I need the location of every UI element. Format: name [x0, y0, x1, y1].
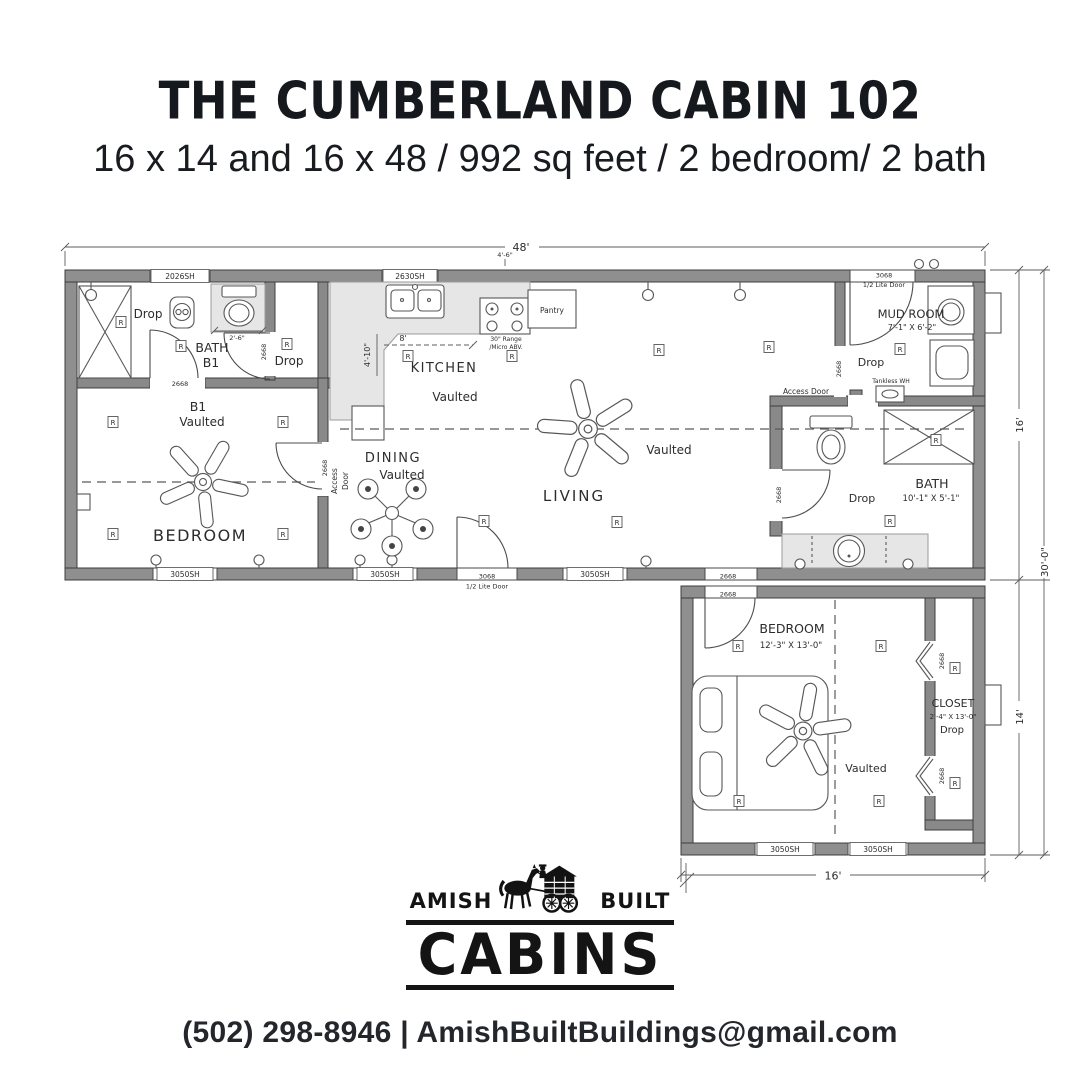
receptacle-r: R: [119, 319, 124, 327]
ceiling-fan-bedroom1: [154, 429, 258, 536]
horse-and-cabin-wagon-icon: [496, 860, 596, 918]
receptacle-r: R: [111, 419, 116, 427]
dim-top: 48' 4'-6": [61, 241, 989, 266]
drop-label-mudroom: Drop: [858, 356, 884, 369]
receptacle-r: R: [737, 798, 742, 806]
window-2630sh: 2630SH: [382, 270, 438, 283]
room-size-closet: 2'-4" X 13'-0": [930, 713, 977, 721]
logo-text-built: BUILT: [600, 889, 670, 918]
drop-label-closet-b1: Drop: [275, 354, 304, 368]
receptacle-r: R: [657, 347, 662, 355]
door-label-2668: 2668: [938, 653, 946, 670]
receptacle-r: R: [934, 437, 939, 445]
dim-right-total-label: 30'-0": [1040, 547, 1051, 577]
door-label-2668: 2668: [938, 768, 946, 785]
receptacle-r: R: [888, 518, 893, 526]
kitchen-run-label: 8': [399, 334, 406, 343]
room-label-bath2: BATH: [915, 476, 948, 491]
receptacle-r: R: [877, 798, 882, 806]
receptacle-r: R: [281, 531, 286, 539]
door-label-2668: 2668: [720, 573, 737, 581]
room-size-bedroom2: 12'-3" X 13'-0": [760, 641, 822, 651]
door-label-2668: 2668: [172, 380, 189, 388]
window-label: 3050SH: [863, 845, 893, 854]
receptacle-r: R: [285, 341, 290, 349]
toilet-b1: [222, 286, 256, 326]
floor-plan-drawing: 48' 4'-6" 16' 14' 30'-0" 16': [0, 225, 1080, 905]
kitchen-sink: [386, 285, 444, 319]
floor-plan: 48' 4'-6" 16' 14' 30'-0" 16': [0, 225, 1080, 905]
access-door-label: Access Door: [783, 387, 830, 396]
window-3050sh-bedroom2-left: 3050SH: [755, 843, 815, 856]
receptacle-r: R: [736, 643, 741, 651]
receptacle-r: R: [111, 531, 116, 539]
pantry-label: Pantry: [540, 306, 565, 315]
shower-bath2: [884, 410, 974, 464]
window-label: 3050SH: [770, 845, 800, 854]
kitchen-depth-label: 4'-10": [363, 343, 372, 367]
tankless-water-heater: [876, 386, 904, 402]
window-3050sh-bedroom2-right: 3050SH: [848, 843, 908, 856]
ceiling-fan-living: [521, 362, 659, 500]
room-label-b1-vaulted: Vaulted: [179, 415, 224, 429]
door-label-3068-type: 1/2 Lite Door: [863, 281, 906, 289]
room-label-living-vaulted: Vaulted: [646, 443, 691, 457]
room-label-bedroom1: BEDROOM: [153, 526, 247, 545]
page-title: THE CUMBERLAND CABIN 102: [22, 71, 1059, 132]
receptacle-r: R: [482, 518, 487, 526]
receptacle-r: R: [879, 643, 884, 651]
receptacle-r: R: [953, 665, 958, 673]
door-label-2668: 2668: [260, 344, 268, 361]
room-label-dining: DINING: [365, 451, 421, 466]
contact-line: (502) 298-8946 | AmishBuiltBuildings@gma…: [0, 1016, 1080, 1050]
left-wall-box: [77, 494, 90, 510]
dim-bottom: 16': [677, 858, 989, 893]
room-label-dining-vaulted: Vaulted: [379, 468, 424, 482]
kitchen-island-cabinet: [352, 406, 384, 440]
drop-label-closet2: Drop: [940, 725, 964, 736]
room-label-kitchen-vaulted: Vaulted: [432, 390, 477, 404]
ridge-lines: [82, 429, 965, 840]
washer: [930, 340, 974, 386]
drop-label-bath1: Drop: [134, 307, 163, 321]
room-label-bedroom2-vaulted: Vaulted: [845, 762, 887, 775]
window-label: 3050SH: [370, 570, 400, 579]
dim-top-small-label: 4'-6": [497, 251, 512, 259]
access-door-vert-2: Door: [341, 471, 350, 490]
room-size-bath2: 10'-1" X 5'-1": [903, 494, 960, 504]
range-note-2: /Micro ABV.: [489, 344, 522, 351]
receptacle-r: R: [898, 346, 903, 354]
room-label-closet: CLOSET: [932, 697, 975, 710]
receptacle-r: R: [510, 353, 515, 361]
range: [480, 298, 530, 334]
receptacle-r: R: [615, 519, 620, 527]
receptacle-r: R: [406, 353, 411, 361]
window-label: 2630SH: [395, 272, 425, 281]
window-2026sh: 2026SH: [150, 270, 210, 283]
receptacle-r: R: [953, 780, 958, 788]
door-label-2668: 2668: [321, 460, 329, 477]
window-label: 2026SH: [165, 272, 195, 281]
tankless-label: Tankless WH: [871, 378, 910, 385]
dim-top-label: 48': [512, 241, 529, 254]
pantry: Pantry: [528, 290, 576, 328]
receptacle-r: R: [281, 419, 286, 427]
logo-text-amish: AMISH: [410, 889, 493, 918]
room-label-bath1: BATH: [195, 340, 228, 355]
room-label-living: LIVING: [543, 487, 605, 505]
page-subtitle: 16 x 14 and 16 x 48 / 992 sq feet / 2 be…: [0, 138, 1080, 181]
drop-label-bath2: Drop: [849, 492, 875, 505]
range-note-1: 30" Range: [490, 336, 522, 343]
window-3050sh-living: 3050SH: [563, 568, 627, 581]
room-label-bath1-num: B1: [203, 355, 220, 370]
door-label-3068-type: 1/2 Lite Door: [466, 583, 509, 591]
dim-right-upper-label: 16': [1015, 417, 1026, 432]
amish-built-cabins-logo: AMISH: [406, 858, 674, 992]
access-door-vert-1: Access: [330, 468, 339, 494]
exhaust-fan-b1: [170, 297, 194, 328]
receptacle-r: R: [767, 344, 772, 352]
dining-chandelier: [351, 479, 433, 556]
receptacle-r: R: [179, 343, 184, 351]
door-label-2668: 2668: [775, 487, 783, 504]
dim-bottom-label: 16': [824, 870, 841, 883]
room-label-bedroom2: BEDROOM: [759, 621, 824, 636]
window-label: 3050SH: [580, 570, 610, 579]
window-3050sh-dining: 3050SH: [353, 568, 417, 581]
flyer: THE CUMBERLAND CABIN 102 16 x 14 and 16 …: [0, 0, 1080, 1080]
door-label-3068: 3068: [876, 272, 893, 280]
room-label-kitchen: KITCHEN: [411, 361, 478, 376]
shower-b1: [79, 286, 131, 378]
room-size-mudroom: 7'-1" X 6'-2": [888, 323, 936, 332]
alcove-dim-label: 2'-6": [229, 334, 244, 342]
door-label-3068: 3068: [479, 573, 496, 581]
room-label-b1: B1: [190, 399, 207, 414]
window-label: 3050SH: [170, 570, 200, 579]
right-wall-box-upper: [985, 293, 1001, 333]
room-label-mudroom: MUD ROOM: [878, 307, 945, 321]
window-3050sh-bedroom1: 3050SH: [153, 568, 217, 581]
dim-right-lower-label: 14': [1015, 709, 1026, 724]
dim-right: 16' 14' 30'-0": [990, 266, 1051, 859]
right-wall-box-lower: [985, 685, 1001, 725]
toilet-bath2: [810, 416, 852, 464]
door-label-2668: 2668: [720, 591, 737, 599]
door-label-2668: 2668: [835, 361, 843, 378]
logo-text-cabins: CABINS: [406, 926, 674, 985]
